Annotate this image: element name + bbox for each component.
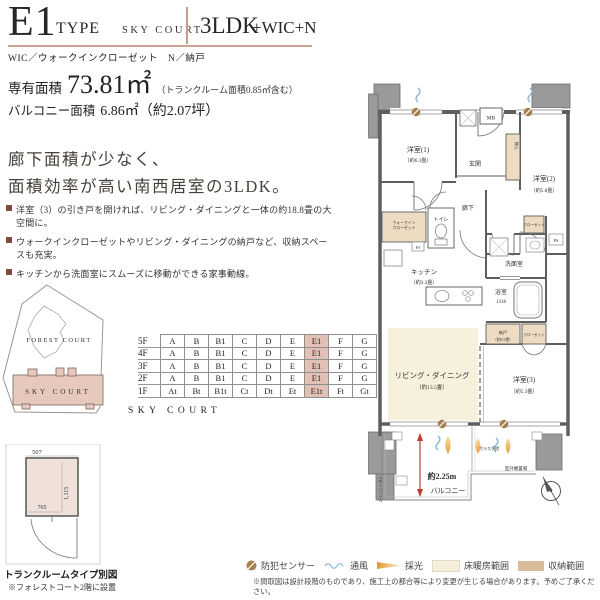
kitchen-size: （約3.3畳） [410, 278, 437, 286]
trunk-note: ※フォレストコート2階に設置 [8, 582, 116, 593]
legend-item: 防犯センサー [246, 559, 315, 572]
forest-court-label: FOREST COURT [26, 337, 91, 344]
fs-label: FS [416, 245, 420, 250]
washroom-label: 洗面室 [505, 260, 523, 268]
highlighted-unit-cell: E1 [305, 347, 329, 360]
living-size: （約13.5畳） [416, 383, 448, 391]
balcony-area-value: 6.86㎡（約2.07坪） [100, 100, 219, 120]
security-sensor-icon [246, 560, 257, 571]
bathtub-icon [514, 282, 542, 318]
kitchen-label: キッチン [411, 268, 437, 276]
table-caption: SKY COURT [128, 406, 221, 416]
slop-sink-icon [396, 476, 407, 485]
bedroom1-size: （約6.3畳） [404, 156, 431, 164]
legend-item: 床暖房範囲 [432, 559, 509, 572]
exclusive-area-value: 73.81㎡ [67, 64, 152, 101]
layout-sub: +WIC+N [252, 18, 317, 38]
glass-rail-label: ガラス手摺 [479, 445, 499, 451]
bath-label: 浴室 [495, 288, 507, 296]
type-word: TYPE [56, 20, 100, 38]
nando-size: （約0.5畳） [493, 337, 513, 342]
bullet-text: 洋室（3）の引き戸を開ければ、リビング・ダイニングと一体の約18.8畳の大空間に… [16, 203, 336, 229]
legend: 防犯センサー 通風 採光 床暖房範囲 収納範囲 [246, 559, 584, 572]
legend-item: 収納範囲 [518, 559, 584, 572]
exclusive-area-row: 専有面積 73.81㎡ （トランクルーム面積0.85㎡含む） [8, 64, 298, 101]
table-row: 2F ABB1CDEE1FG [138, 372, 377, 385]
balcony-area-label: バルコニー面積 [8, 100, 95, 119]
bullet-text: ウォークインクローゼットやリビング・ダイニングの納戸など、収納スペースも充実。 [16, 235, 336, 261]
floor-plan: 洋室(1) （約6.3畳） 玄関 MB 物入 洋室(2) （約5.8畳） 廊下 … [368, 82, 600, 564]
header-rule [8, 45, 312, 47]
bath-size: 1418 [496, 300, 507, 305]
floor-label: 4F [138, 347, 161, 360]
kitchen-counter [426, 287, 482, 305]
balcony-depth-label: 約2.25m [428, 471, 457, 481]
layout-main: 3LDK [200, 13, 259, 39]
bedroom3-label: 洋室(3) [513, 375, 536, 384]
floor-label: 2F [138, 372, 161, 385]
legend-label: 防犯センサー [261, 559, 315, 572]
trunk-dim-right: 1,115 [64, 487, 70, 500]
wic-label-2: クローゼット [393, 225, 416, 230]
balcony-depth-dimension [417, 433, 423, 497]
exclusive-area-note: （トランクルーム面積0.85㎡含む） [157, 83, 298, 96]
floor-label: 3F [138, 360, 161, 373]
legend-label: 収納範囲 [548, 559, 584, 572]
floor-label: 5F [138, 335, 161, 348]
disclaimer: ※間取図は設計段階のものであり、施工上の都合等により変更が生じる場合があります。… [253, 577, 598, 597]
building-name: SKY COURT [122, 25, 203, 36]
compass-icon [542, 477, 561, 505]
mb-label: MB [487, 116, 496, 122]
nando-label: 納戸 [499, 329, 507, 336]
toilet-bowl-icon [436, 224, 447, 238]
bullet-square-icon [6, 205, 12, 211]
legend-item: 通風 [324, 559, 368, 572]
balcony-label: バルコニー [431, 487, 466, 495]
hallway-label: 廊下 [462, 204, 474, 212]
bedroom2-size: （約5.8畳） [530, 186, 557, 194]
wic-label-1: ウォークイン [393, 220, 416, 225]
headline-line1: 廊下面積が少なく、 [8, 146, 290, 173]
trunk-room-box [26, 458, 78, 516]
balcony-area-row: バルコニー面積 6.86㎡（約2.07坪） [8, 100, 219, 120]
daylight-icons [445, 436, 510, 454]
highlighted-unit-cell: E1 [305, 360, 329, 373]
slop-sink-label: スロップシンク [378, 476, 383, 503]
highlighted-unit-cell: E1t [305, 385, 329, 398]
sky-court-label: SKY COURT [25, 388, 91, 396]
table-row: 3F ABB1CDEE1FG [138, 360, 377, 373]
bullet-item: 洋室（3）の引き戸を開ければ、リビング・ダイニングと一体の約18.8畳の大空間に… [6, 203, 336, 229]
headline: 廊下面積が少なく、 面積効率が高い南西居室の3LDK。 [8, 146, 290, 200]
trunk-room-diagram: 507 1,115 765 [4, 444, 104, 566]
trunk-dim-top: 507 [32, 449, 43, 456]
brochure-page: E1 TYPE SKY COURT 3LDK +WIC+N WIC／ウォークイン… [0, 0, 600, 600]
hall-closet-label: クローゼット [524, 222, 545, 227]
floor-heating-swatch [432, 560, 460, 572]
bullet-item: ウォークインクローゼットやリビング・ダイニングの納戸など、収納スペースも充実。 [6, 235, 336, 261]
floor-label: 1F [138, 385, 161, 398]
bedroom1-label: 洋室(1) [407, 145, 430, 154]
trunk-dim-bottom: 765 [38, 505, 47, 511]
legend-label: 通風 [350, 559, 368, 572]
headline-line2: 面積効率が高い南西居室の3LDK。 [8, 173, 290, 200]
table-row: 4F ABB1CDEE1FG [138, 347, 377, 360]
kitchen-sink-icon [435, 291, 449, 302]
ventilation-icon [324, 561, 346, 570]
toilet-label: トイレ [433, 217, 448, 223]
storage-range-swatch [518, 561, 544, 571]
exclusive-area-label: 専有面積 [8, 77, 62, 97]
header-divider [186, 7, 188, 44]
outdoor-unit-label: 室外機置場 [505, 465, 528, 472]
legend-item: 採光 [377, 559, 423, 572]
abbreviation-note: WIC／ウォークインクローゼット N／納戸 [8, 50, 205, 64]
daylight-icon [377, 561, 401, 570]
living-label: リビング・ダイニング [395, 370, 470, 380]
legend-label: 採光 [405, 559, 423, 572]
bedroom2-label: 洋室(2) [533, 174, 556, 183]
table-row: 5F ABB1CDEE1FG [138, 335, 377, 348]
floor-plan-table: 5F ABB1CDEE1FG 4F ABB1CDEE1FG 3F ABB1CDE… [138, 334, 377, 398]
ps-label: PS [553, 238, 559, 243]
highlighted-unit-cell: E1 [305, 372, 329, 385]
bedroom3-size: （約5.3畳） [510, 387, 537, 395]
entry-storage-label: 物入 [513, 142, 520, 151]
bedroom3-closet-label: クローゼット [524, 332, 545, 337]
trunk-caption: トランクルームタイプ別図 [4, 567, 117, 581]
entrance-label: 玄関 [469, 160, 481, 168]
bullet-square-icon [6, 237, 12, 243]
refrigerator-space [384, 250, 402, 266]
table-row: 1F AtBtB1tCtDtEtE1tFtGt [138, 385, 377, 398]
vanity-counter [526, 238, 544, 252]
highlighted-unit-cell: E1 [305, 335, 329, 348]
legend-label: 床暖房範囲 [464, 559, 509, 572]
type-code: E1 [8, 2, 57, 42]
